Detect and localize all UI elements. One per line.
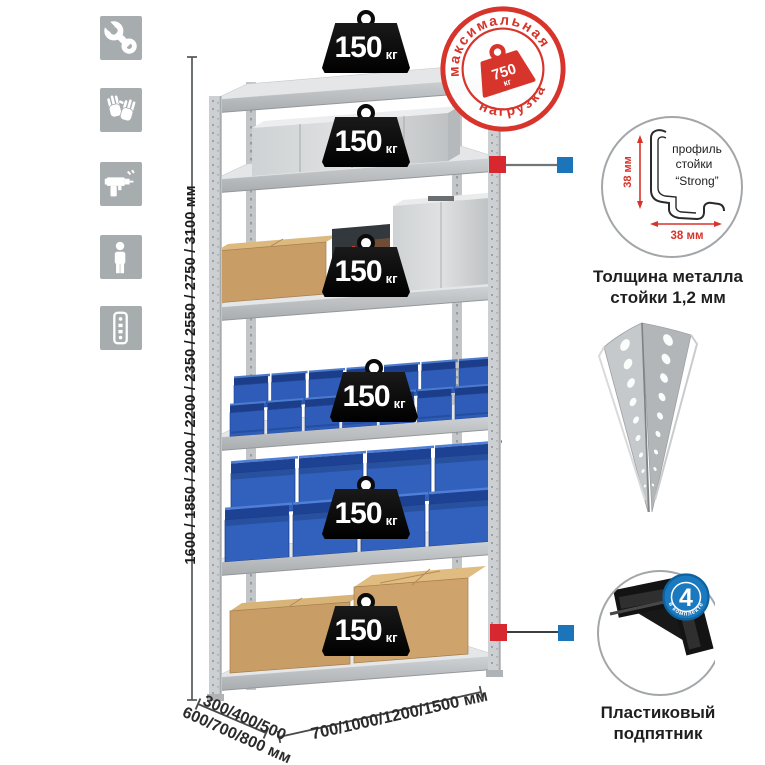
profile-caption-line2: стойки 1,2 мм [563, 287, 765, 308]
load-unit: кг [386, 630, 398, 645]
foot-caption-line2: подпятник [553, 723, 763, 744]
load-value: 150 [343, 382, 390, 412]
load-value: 150 [335, 33, 382, 63]
profile-dim-horizontal-text: 38 мм [670, 230, 703, 242]
foot-caption: Пластиковый подпятник [553, 702, 763, 744]
load-value: 150 [335, 257, 382, 287]
profile-callout-marker [489, 156, 573, 173]
gloves-icon [100, 88, 142, 132]
shelf-load-badge-5: 150кг [322, 489, 410, 539]
profile-dim-vertical-text: 38 мм [622, 156, 634, 188]
wrench-icon [100, 16, 142, 60]
foot-badge-value: 4 [679, 584, 693, 612]
cardboard-box [216, 235, 338, 303]
profile-label-1: профиль [672, 142, 722, 156]
angle-post-image [590, 310, 710, 525]
load-unit: кг [386, 141, 398, 156]
shelf-load-badge-2: 150кг [322, 117, 410, 167]
person-icon [100, 235, 142, 279]
profile-caption-line1: Толщина металла [563, 266, 765, 287]
load-unit: кг [386, 47, 398, 62]
load-unit: кг [386, 271, 398, 286]
drill-icon [100, 162, 142, 206]
marker-blue-square-top [557, 157, 573, 173]
profile-label-3: “Strong” [675, 174, 718, 188]
foot-count-badge: 4 в комплекте [660, 571, 713, 624]
marker-red-square-bottom [490, 624, 507, 641]
marker-red-square-top [489, 156, 506, 173]
height-dimensions-label: 1600 / 1850 / 2000 / 2200 / 2350 / 2550 … [183, 55, 201, 695]
load-value: 150 [335, 499, 382, 529]
profile-caption: Толщина металла стойки 1,2 мм [563, 266, 765, 308]
shelf-load-badge-4: 150кг [330, 372, 418, 422]
shelf-load-badge-3: 150кг [322, 247, 410, 297]
load-value: 150 [335, 616, 382, 646]
load-unit: кг [394, 396, 406, 411]
shelf-load-badge-1: 150кг [322, 23, 410, 73]
load-unit: кг [386, 513, 398, 528]
profile-strip-icon [100, 306, 142, 350]
profile-label-2: стойки [676, 157, 713, 171]
foot-callout-marker [490, 624, 574, 641]
shelf-load-badge-6: 150кг [322, 606, 410, 656]
marker-blue-square-bottom [558, 625, 574, 641]
product-infographic: 1600 / 1850 / 2000 / 2200 / 2350 / 2550 … [0, 0, 765, 765]
load-value: 150 [335, 127, 382, 157]
post-profile-diagram: 38 мм 38 мм профиль стойки “Strong” [598, 113, 748, 263]
foot-caption-line1: Пластиковый [553, 702, 763, 723]
